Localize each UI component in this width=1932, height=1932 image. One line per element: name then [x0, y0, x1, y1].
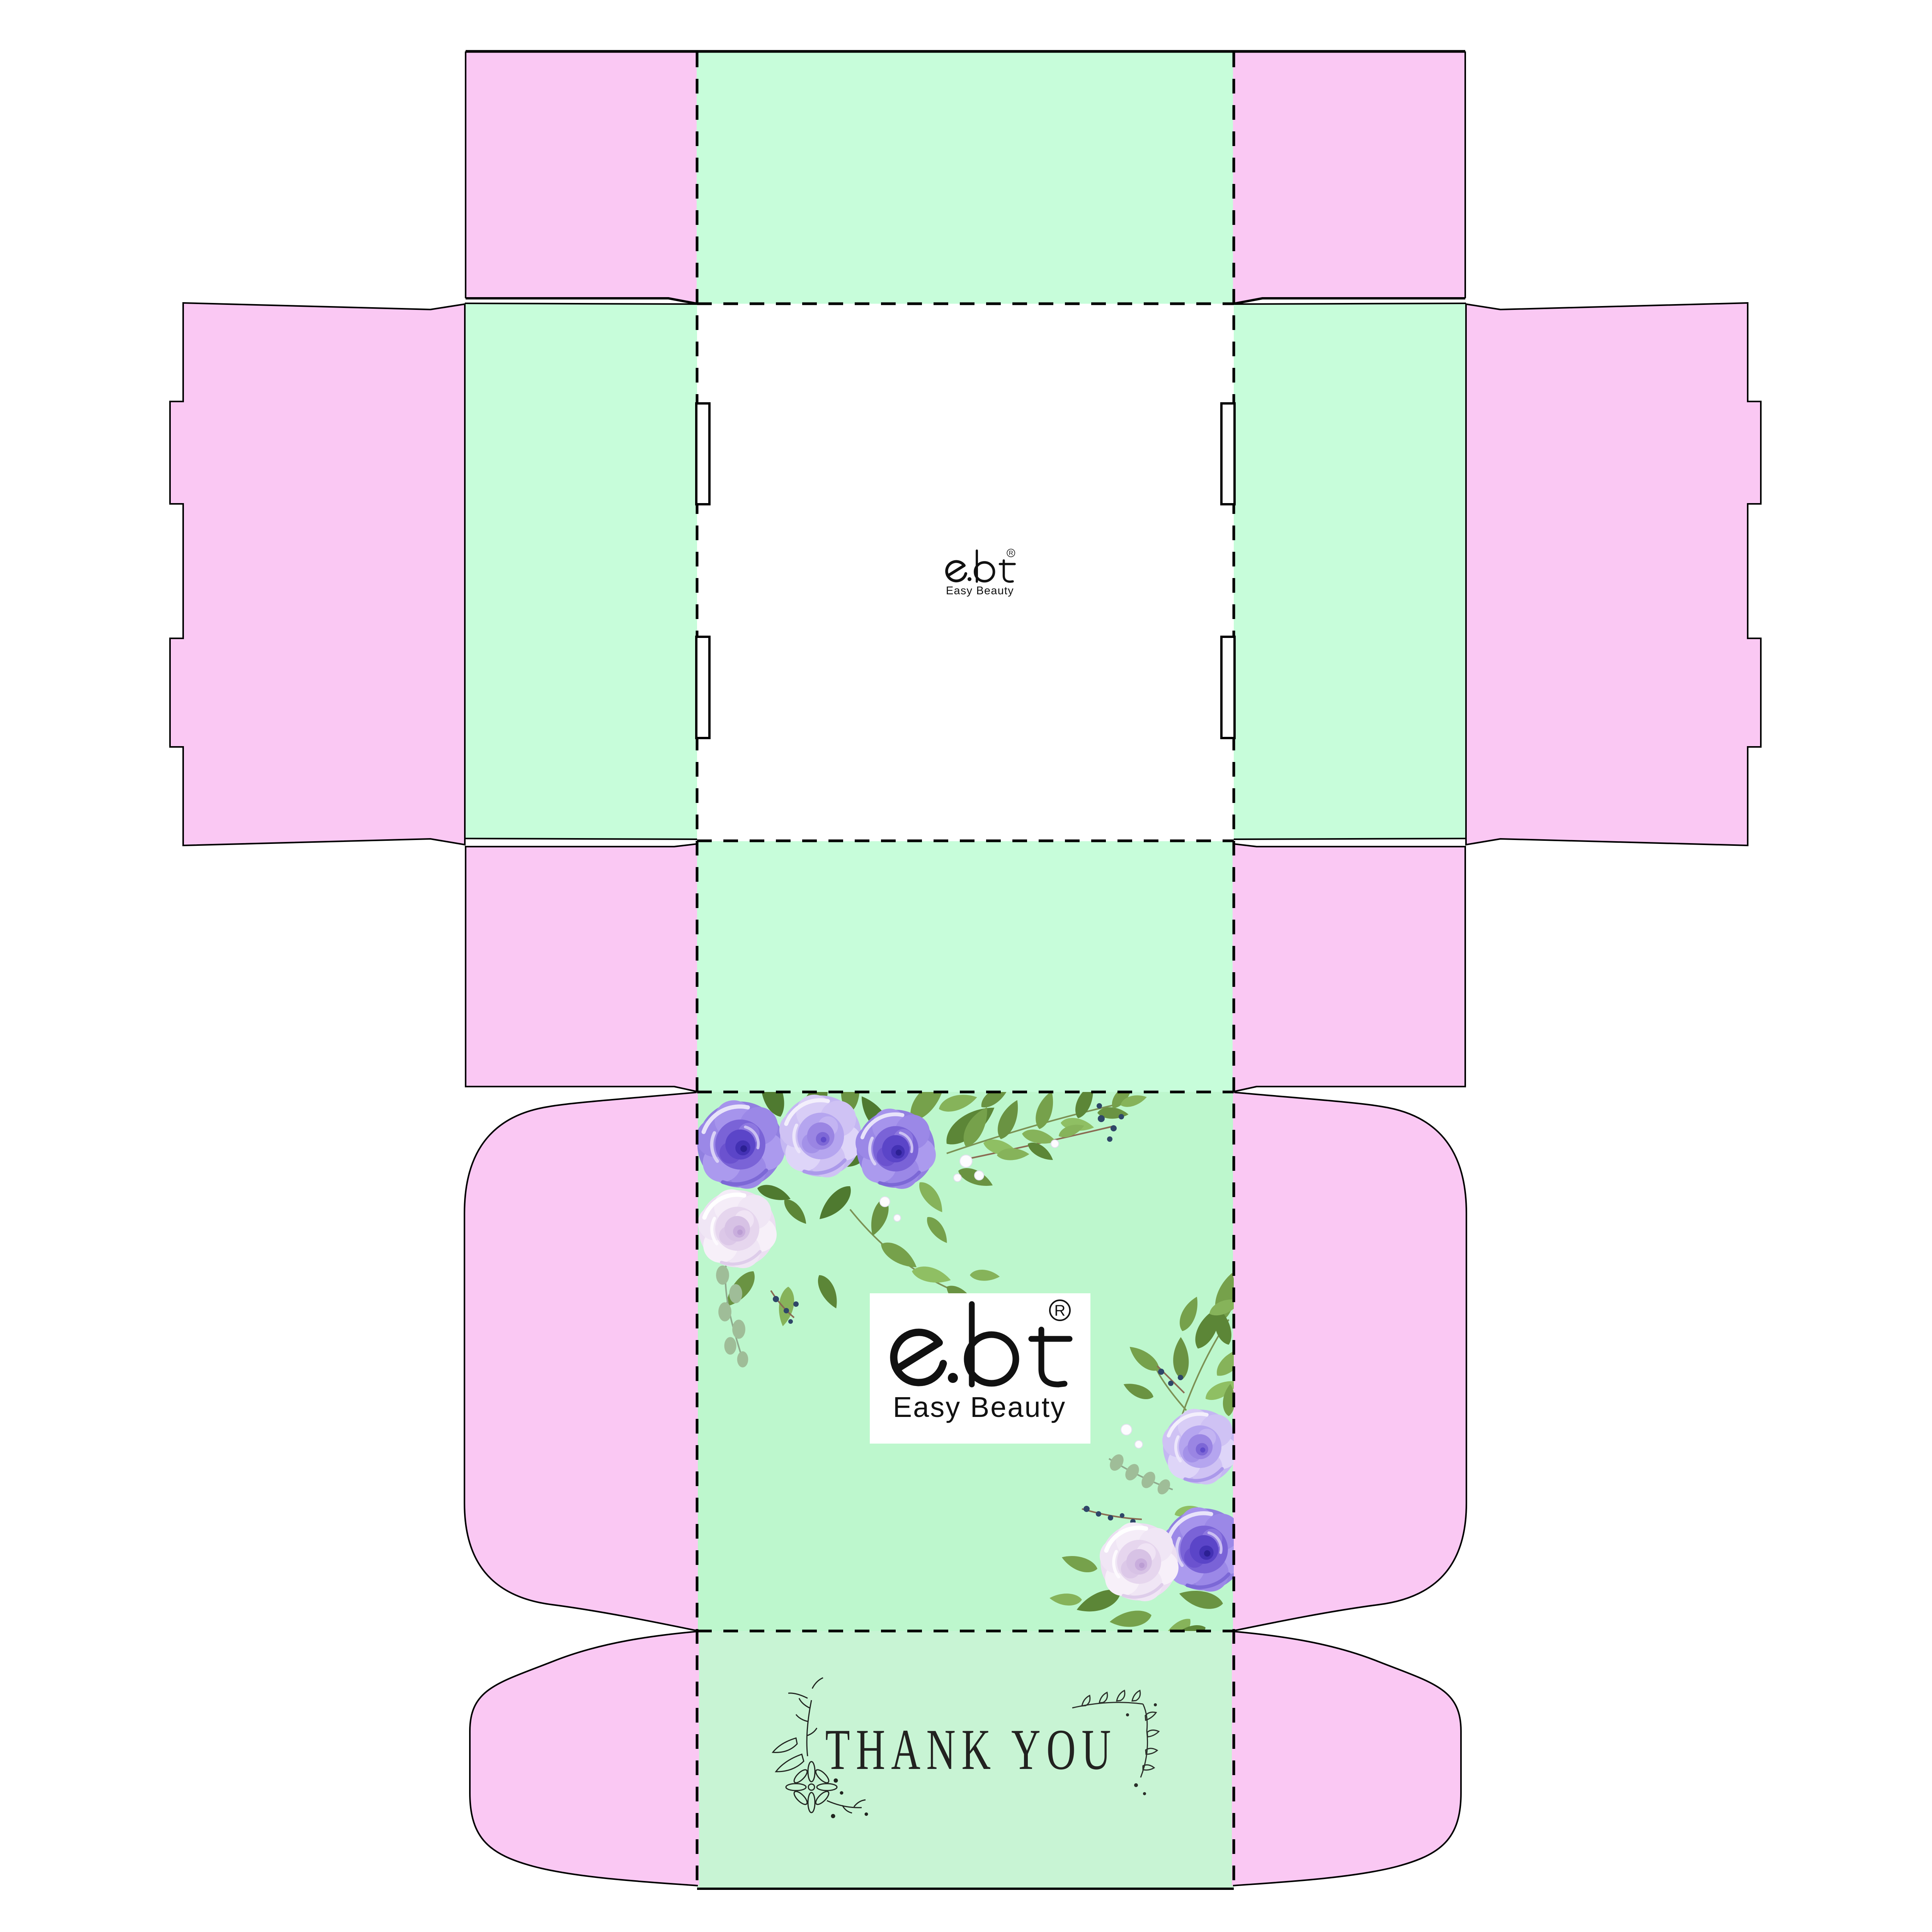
- svg-text:THANK YOU: THANK YOU: [825, 1718, 1117, 1782]
- svg-text:Easy Beauty: Easy Beauty: [946, 585, 1014, 597]
- svg-text:Easy Beauty: Easy Beauty: [893, 1391, 1066, 1423]
